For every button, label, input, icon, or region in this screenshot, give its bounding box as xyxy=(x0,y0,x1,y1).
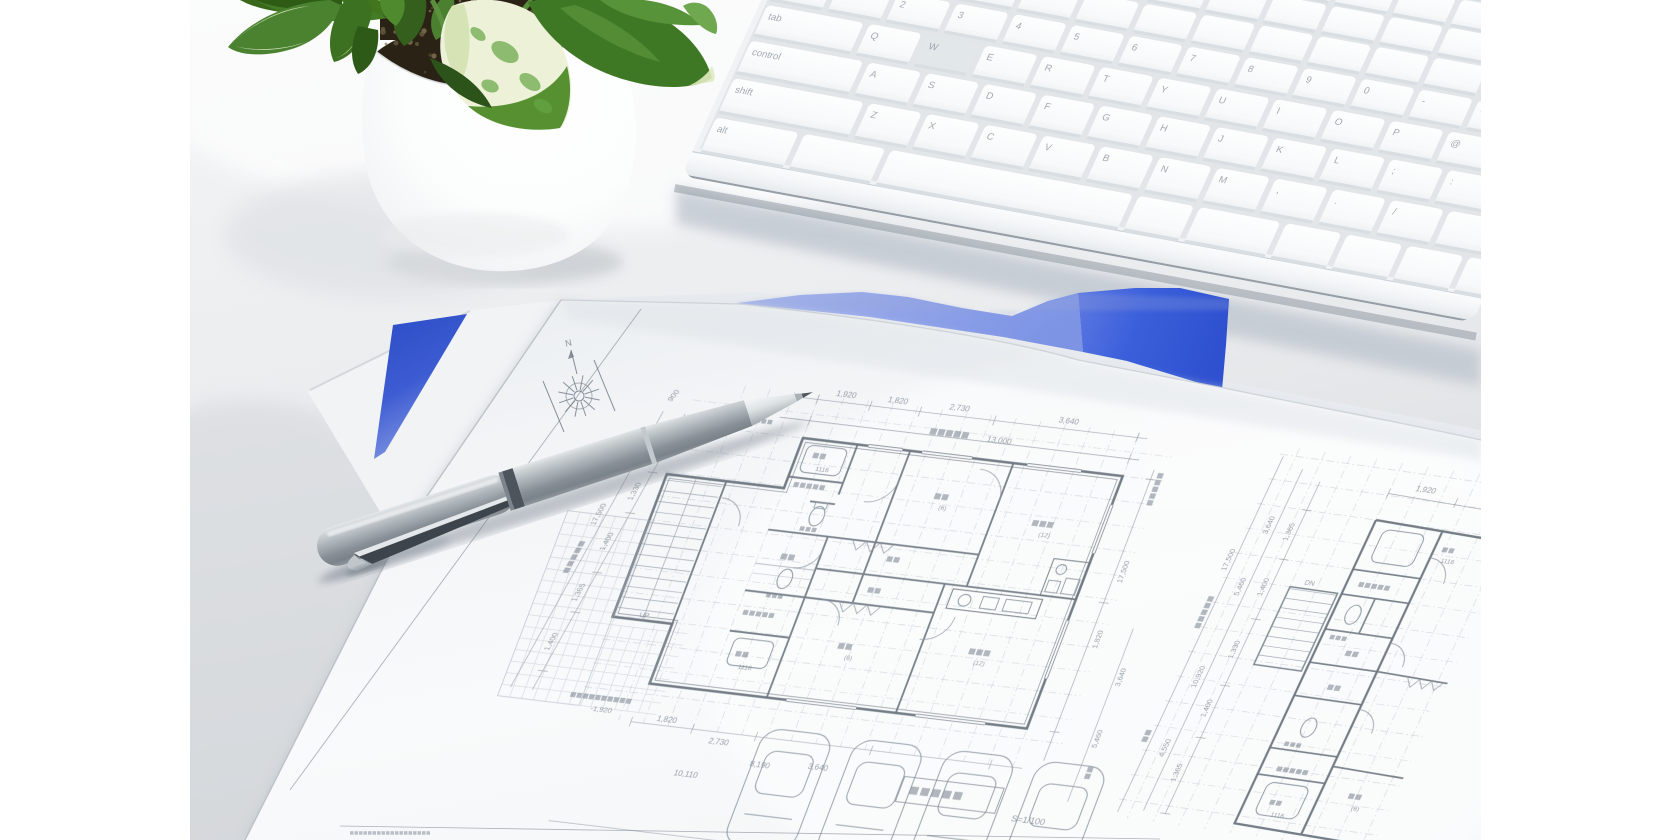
svg-text:(12): (12) xyxy=(1037,532,1051,540)
svg-text:(12): (12) xyxy=(972,660,986,668)
